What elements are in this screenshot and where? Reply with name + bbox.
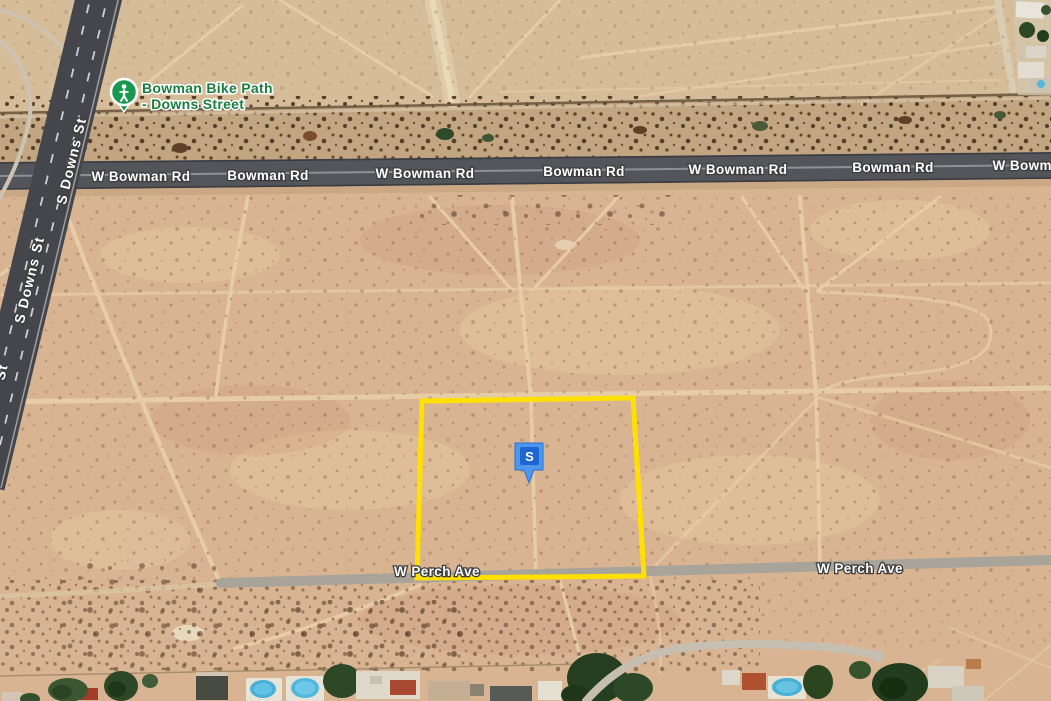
property-marker-letter: S [525, 449, 534, 464]
road-label-bowman: W Bowman Rd [993, 158, 1051, 173]
road-label-bowman: W Bowman Rd [689, 162, 788, 177]
map-canvas[interactable]: W Bowman Rd Bowman Rd W Bowman Rd Bowman… [0, 0, 1051, 701]
road-label-bowman: Bowman Rd [852, 160, 934, 175]
road-label-bowman: Bowman Rd [227, 168, 309, 183]
road-label-perch: W Perch Ave [394, 564, 480, 579]
top-right-buildings [1013, 0, 1051, 95]
road-label-bowman: W Bowman Rd [376, 166, 475, 181]
road-label-bowman: W Bowman Rd [92, 169, 191, 184]
road-label-bowman: Bowman Rd [543, 164, 625, 179]
satellite-map-view[interactable]: W Bowman Rd Bowman Rd W Bowman Rd Bowman… [0, 0, 1051, 701]
bike-path-label-line2: - Downs Street [142, 96, 244, 112]
bike-path-label-line1: Bowman Bike Path [142, 80, 273, 96]
road-label-perch: W Perch Ave [817, 561, 903, 576]
